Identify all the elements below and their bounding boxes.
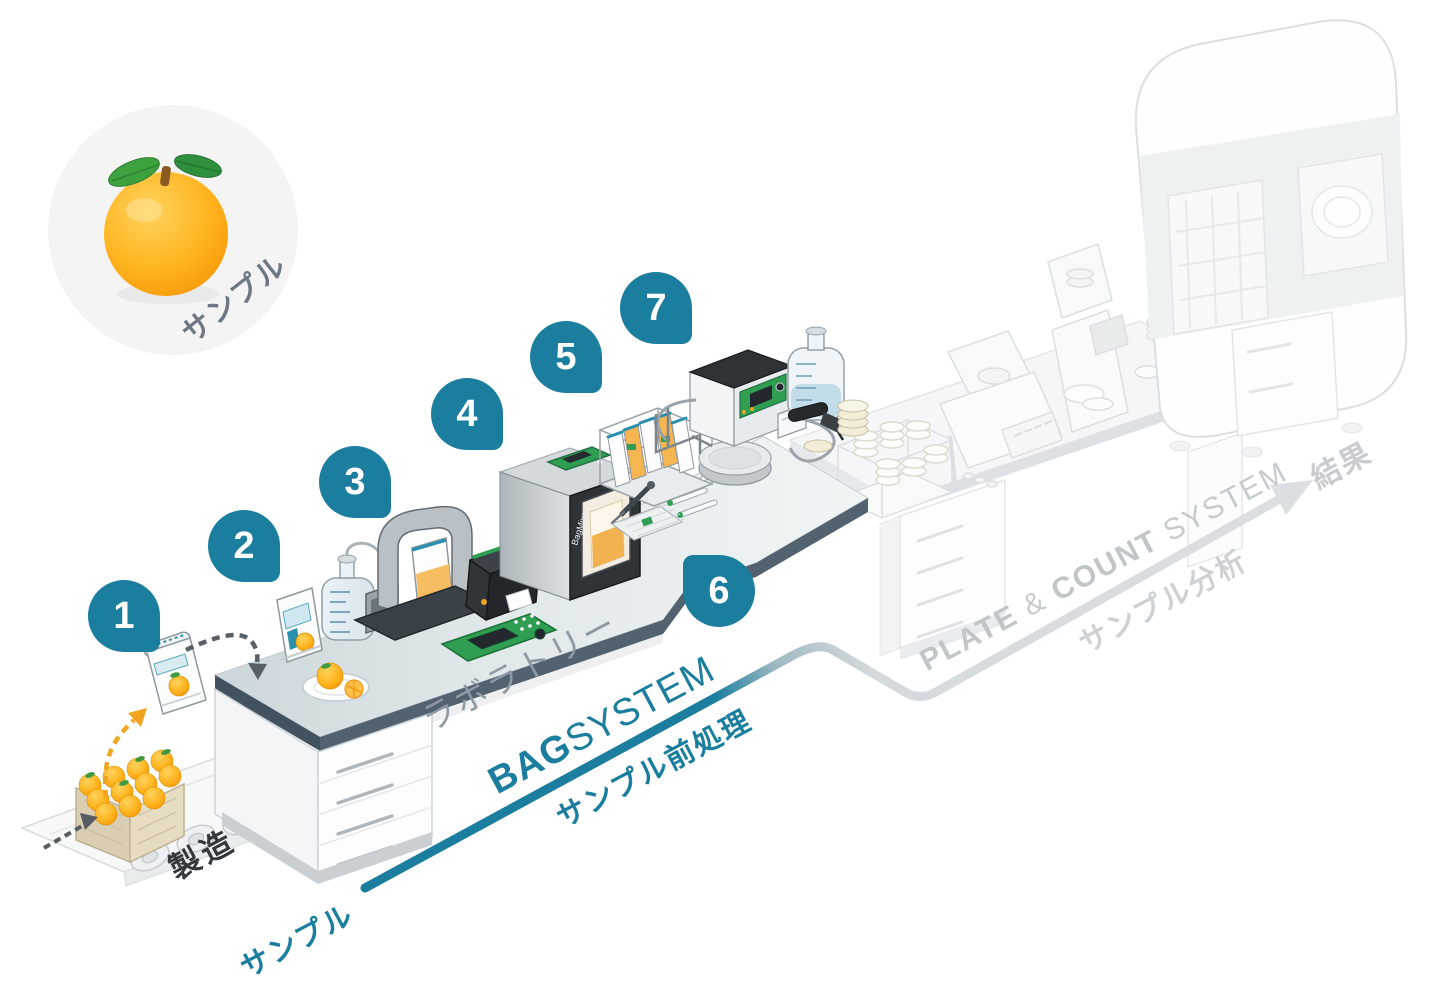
orange-arrowhead-icon	[128, 708, 147, 727]
step-badge-5: 5	[530, 321, 602, 393]
sample-bag-standing	[277, 588, 322, 662]
scale	[699, 441, 771, 485]
orange-icon	[104, 172, 228, 296]
step-badge-3: 3	[319, 446, 391, 518]
step-badge-4: 4	[431, 378, 503, 450]
step-badge-7: 7	[620, 272, 692, 344]
step-badge-6: 6	[683, 555, 755, 627]
incubator-reader-machine	[1136, 20, 1406, 457]
bagsystem-workflow-diagram: BagMixer	[0, 0, 1440, 1000]
step-badge-1: 1	[88, 580, 160, 652]
step-badge-2: 2	[208, 510, 280, 582]
dish-dispenser-icon	[1048, 244, 1112, 318]
